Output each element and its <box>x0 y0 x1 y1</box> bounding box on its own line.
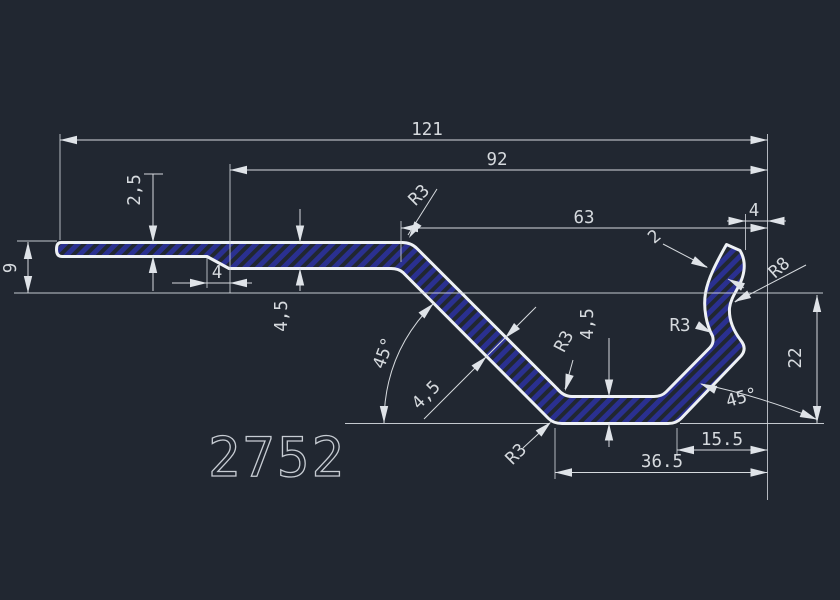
dim-label-63: 63 <box>573 208 594 228</box>
dim-label-36-5: 36.5 <box>641 452 683 472</box>
dim-label-9: 9 <box>1 263 21 274</box>
dim-label-92: 92 <box>486 150 507 170</box>
dim-label-4-step: 4 <box>212 263 223 283</box>
dim-label-4-5-bottom: 4,5 <box>578 308 598 340</box>
dim-label-22: 22 <box>786 347 806 368</box>
cad-canvas: 121 92 63 4 2,5 9 <box>0 0 840 600</box>
dim-label-15-5: 15.5 <box>701 430 743 450</box>
dim-label-2-5: 2,5 <box>125 174 145 206</box>
dim-label-4-hook: 4 <box>749 201 760 221</box>
drawing-svg: 121 92 63 4 2,5 9 <box>0 0 840 600</box>
dim-label-121: 121 <box>411 120 443 140</box>
dim-label-4-5-left: 4,5 <box>272 300 292 332</box>
dim-label-r3-hook: R3 <box>669 316 690 336</box>
part-number-label: 2752 <box>208 426 346 489</box>
